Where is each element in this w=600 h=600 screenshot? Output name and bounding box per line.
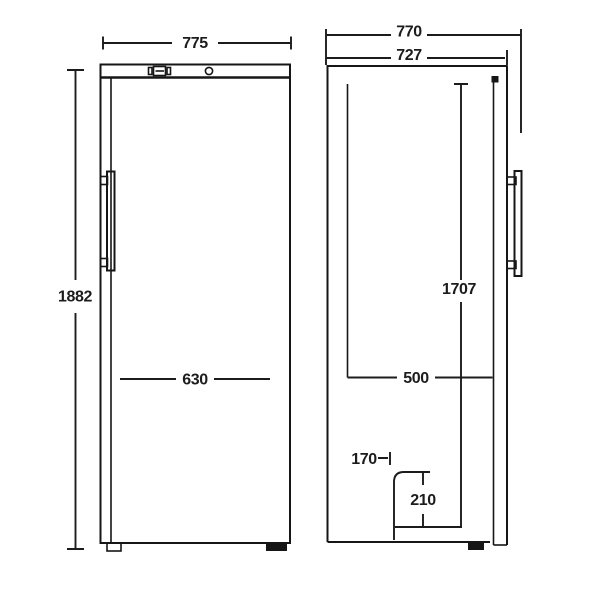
dimension-recess-height: 210 (395, 472, 462, 527)
front-foot-right (266, 543, 287, 551)
dimension-door-height: 1707 (442, 84, 476, 527)
front-view: 630 775 1882 (58, 35, 291, 551)
side-body-outline (328, 66, 508, 542)
dimension-inner-depth: 500 (348, 84, 493, 387)
dimension-drawing: 630 775 1882 (0, 0, 600, 600)
dimension-recess-depth: 170 (351, 451, 390, 468)
dimension-label-727: 727 (396, 47, 422, 64)
dimension-front-width: 775 (103, 35, 291, 52)
front-body-outline (101, 65, 291, 544)
dimension-depth-door: 727 (326, 47, 507, 65)
side-foot (468, 542, 484, 550)
dimension-inner-width: 630 (120, 372, 270, 389)
dimension-label-170: 170 (351, 451, 377, 468)
door-hinge (492, 76, 499, 83)
dimension-label-775: 775 (182, 35, 208, 52)
appliance-dimension-diagram: 630 775 1882 (0, 0, 600, 600)
control-dial-icon (205, 67, 212, 74)
side-view: 770 727 1707 500 170 210 (326, 24, 522, 551)
dimension-label-1882: 1882 (58, 289, 92, 306)
front-door-handle (101, 172, 115, 271)
dimension-label-770: 770 (396, 24, 422, 41)
side-door-handle (507, 171, 522, 276)
dimension-label-630: 630 (182, 372, 208, 389)
dimension-front-height: 1882 (58, 70, 92, 549)
dimension-label-210: 210 (410, 492, 436, 509)
control-display-icon (149, 67, 171, 76)
dimension-label-500: 500 (403, 370, 429, 387)
front-foot-left (107, 543, 121, 551)
dimension-label-1707: 1707 (442, 281, 476, 298)
